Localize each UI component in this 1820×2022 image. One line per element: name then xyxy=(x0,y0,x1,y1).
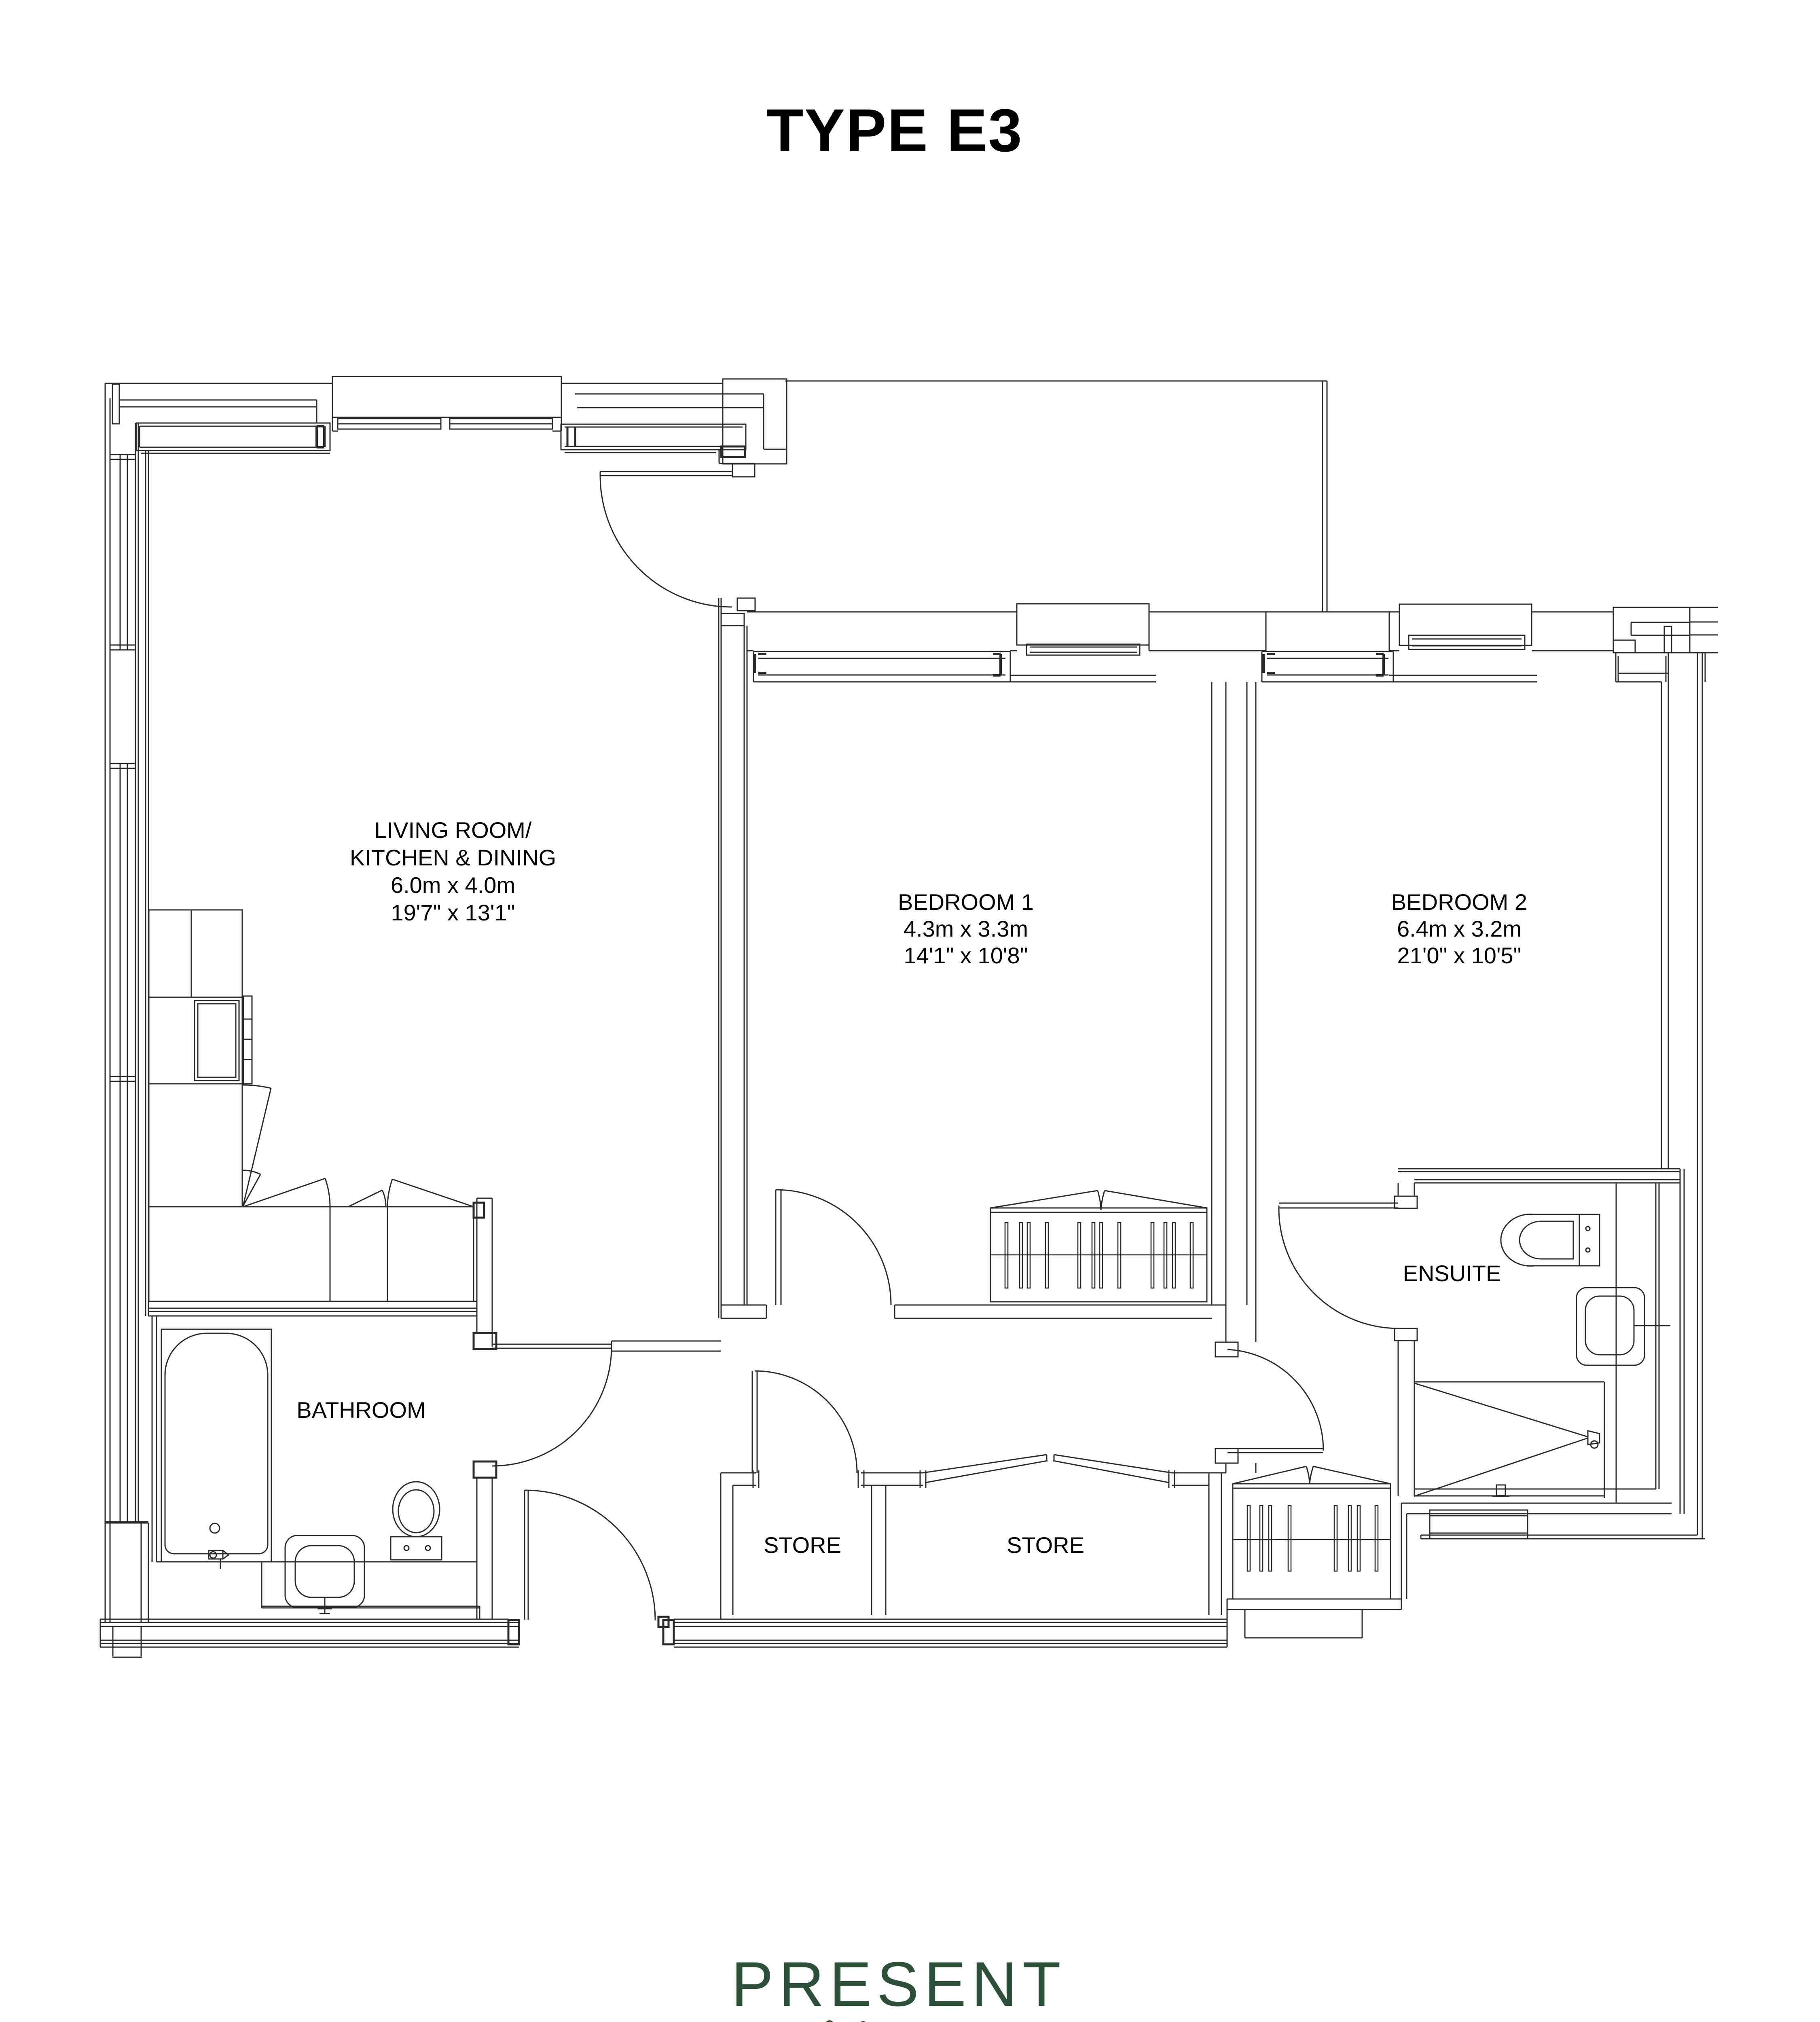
svg-text:4.3m x 3.3m: 4.3m x 3.3m xyxy=(904,916,1028,941)
svg-text:ENSUITE: ENSUITE xyxy=(1403,1261,1501,1286)
svg-text:14'1" x 10'8": 14'1" x 10'8" xyxy=(904,943,1028,968)
svg-text:BEDROOM 1: BEDROOM 1 xyxy=(898,889,1034,915)
svg-text:LIVING ROOM/: LIVING ROOM/ xyxy=(375,817,532,843)
svg-text:BEDROOM 2: BEDROOM 2 xyxy=(1391,889,1527,915)
svg-text:STORE: STORE xyxy=(1007,1532,1084,1558)
svg-text:STORE: STORE xyxy=(764,1532,841,1558)
svg-text:6.4m x 3.2m: 6.4m x 3.2m xyxy=(1397,916,1522,941)
svg-text:PRESENT: PRESENT xyxy=(731,1949,1066,2020)
svg-text:KITCHEN & DINING: KITCHEN & DINING xyxy=(350,845,556,870)
svg-text:TYPE E3: TYPE E3 xyxy=(766,96,1023,164)
svg-text:BATHROOM: BATHROOM xyxy=(296,1397,425,1423)
svg-text:21'0" x 10'5": 21'0" x 10'5" xyxy=(1397,943,1521,968)
svg-text:6.0m x 4.0m: 6.0m x 4.0m xyxy=(391,872,515,898)
svg-text:19'7" x 13'1": 19'7" x 13'1" xyxy=(391,900,515,925)
